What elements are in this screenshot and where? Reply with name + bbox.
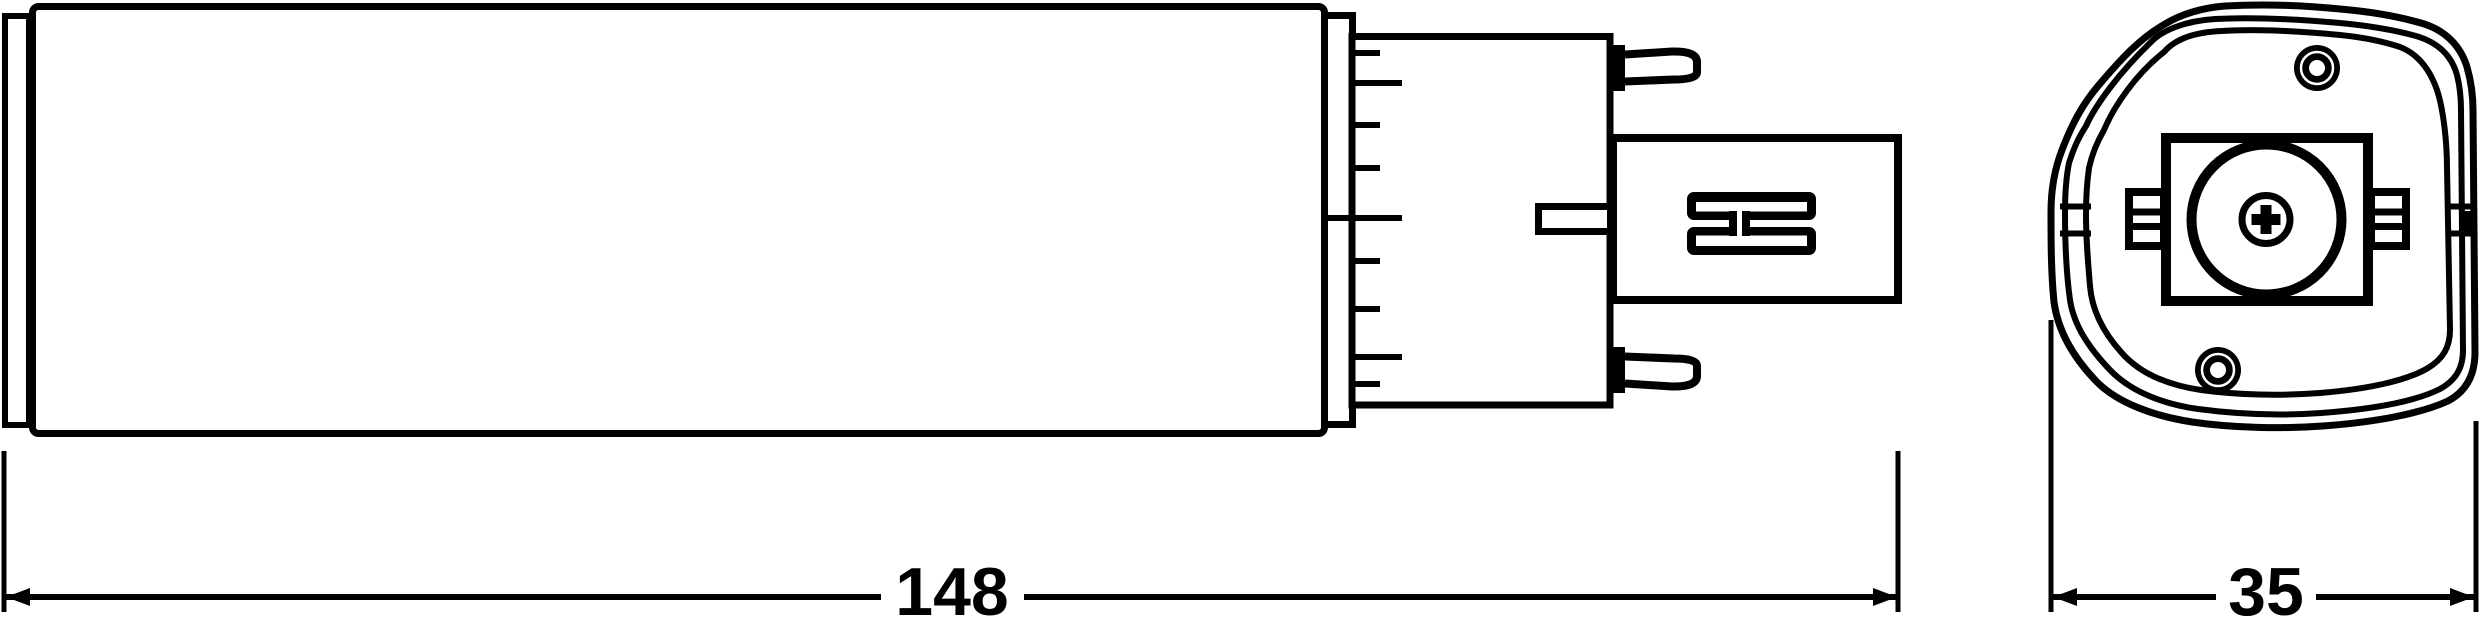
svg-text:35: 35 — [2228, 554, 2304, 620]
svg-text:148: 148 — [895, 554, 1008, 620]
